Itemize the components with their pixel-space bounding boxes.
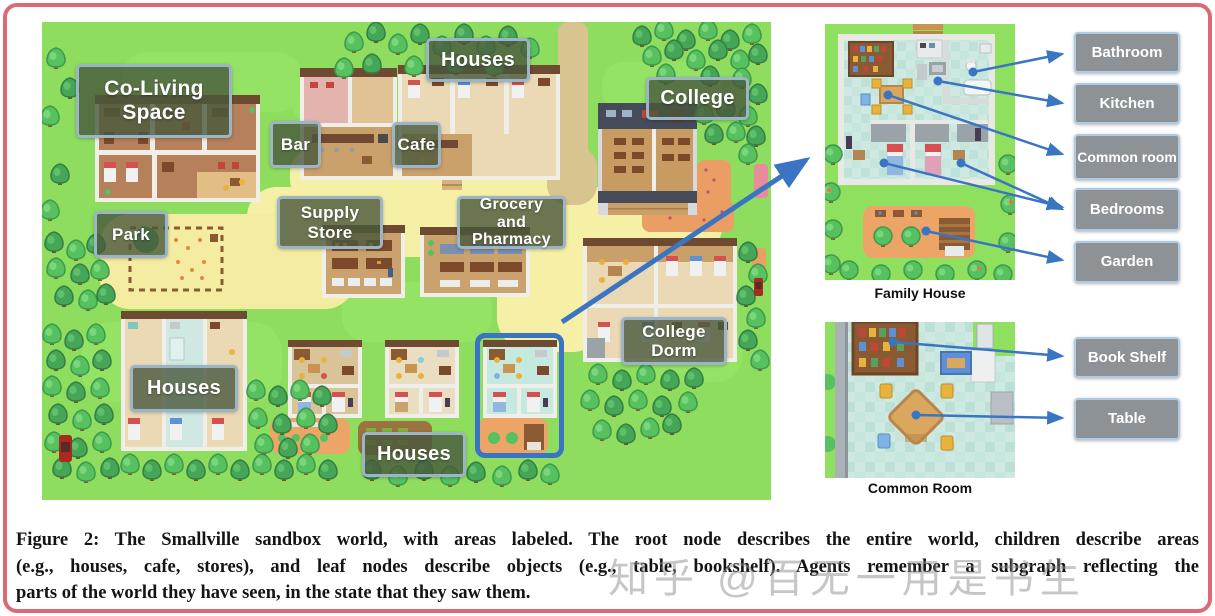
map-label-houses-top: Houses [426,38,530,82]
family-house-image [825,24,1015,280]
map-label-grocery-and-pharmacy: Grocery and Pharmacy [457,196,566,249]
map-label-bar: Bar [270,121,321,168]
family-house-highlight-box [475,333,564,458]
object-label-table: Table [1074,398,1180,440]
map-label-cafe: Cafe [392,122,441,168]
map-label-supply-store: Supply Store [277,196,383,249]
family-house-caption: Family House [825,285,1015,301]
map-label-houses-bottom-left: Houses [130,365,238,412]
common-room-caption: Common Room [825,480,1015,496]
object-label-book-shelf: Book Shelf [1074,337,1180,378]
map-label-college: College [646,77,749,120]
area-label-bedrooms: Bedrooms [1074,188,1180,231]
map-label-co-living-space: Co-Living Space [76,64,232,138]
common-room-image [825,322,1015,478]
area-label-common-room: Common room [1074,134,1180,180]
watermark: 知乎 @百无一用是书生 [608,546,1086,604]
map-label-park: Park [94,211,168,258]
area-label-kitchen: Kitchen [1074,83,1180,124]
figure-2-page: Co-Living Space Houses College Bar Cafe … [0,0,1215,616]
area-label-bathroom: Bathroom [1074,32,1180,73]
map-label-houses-bottom-center: Houses [362,432,466,477]
map-label-college-dorm: College Dorm [621,317,727,365]
area-label-garden: Garden [1074,241,1180,283]
